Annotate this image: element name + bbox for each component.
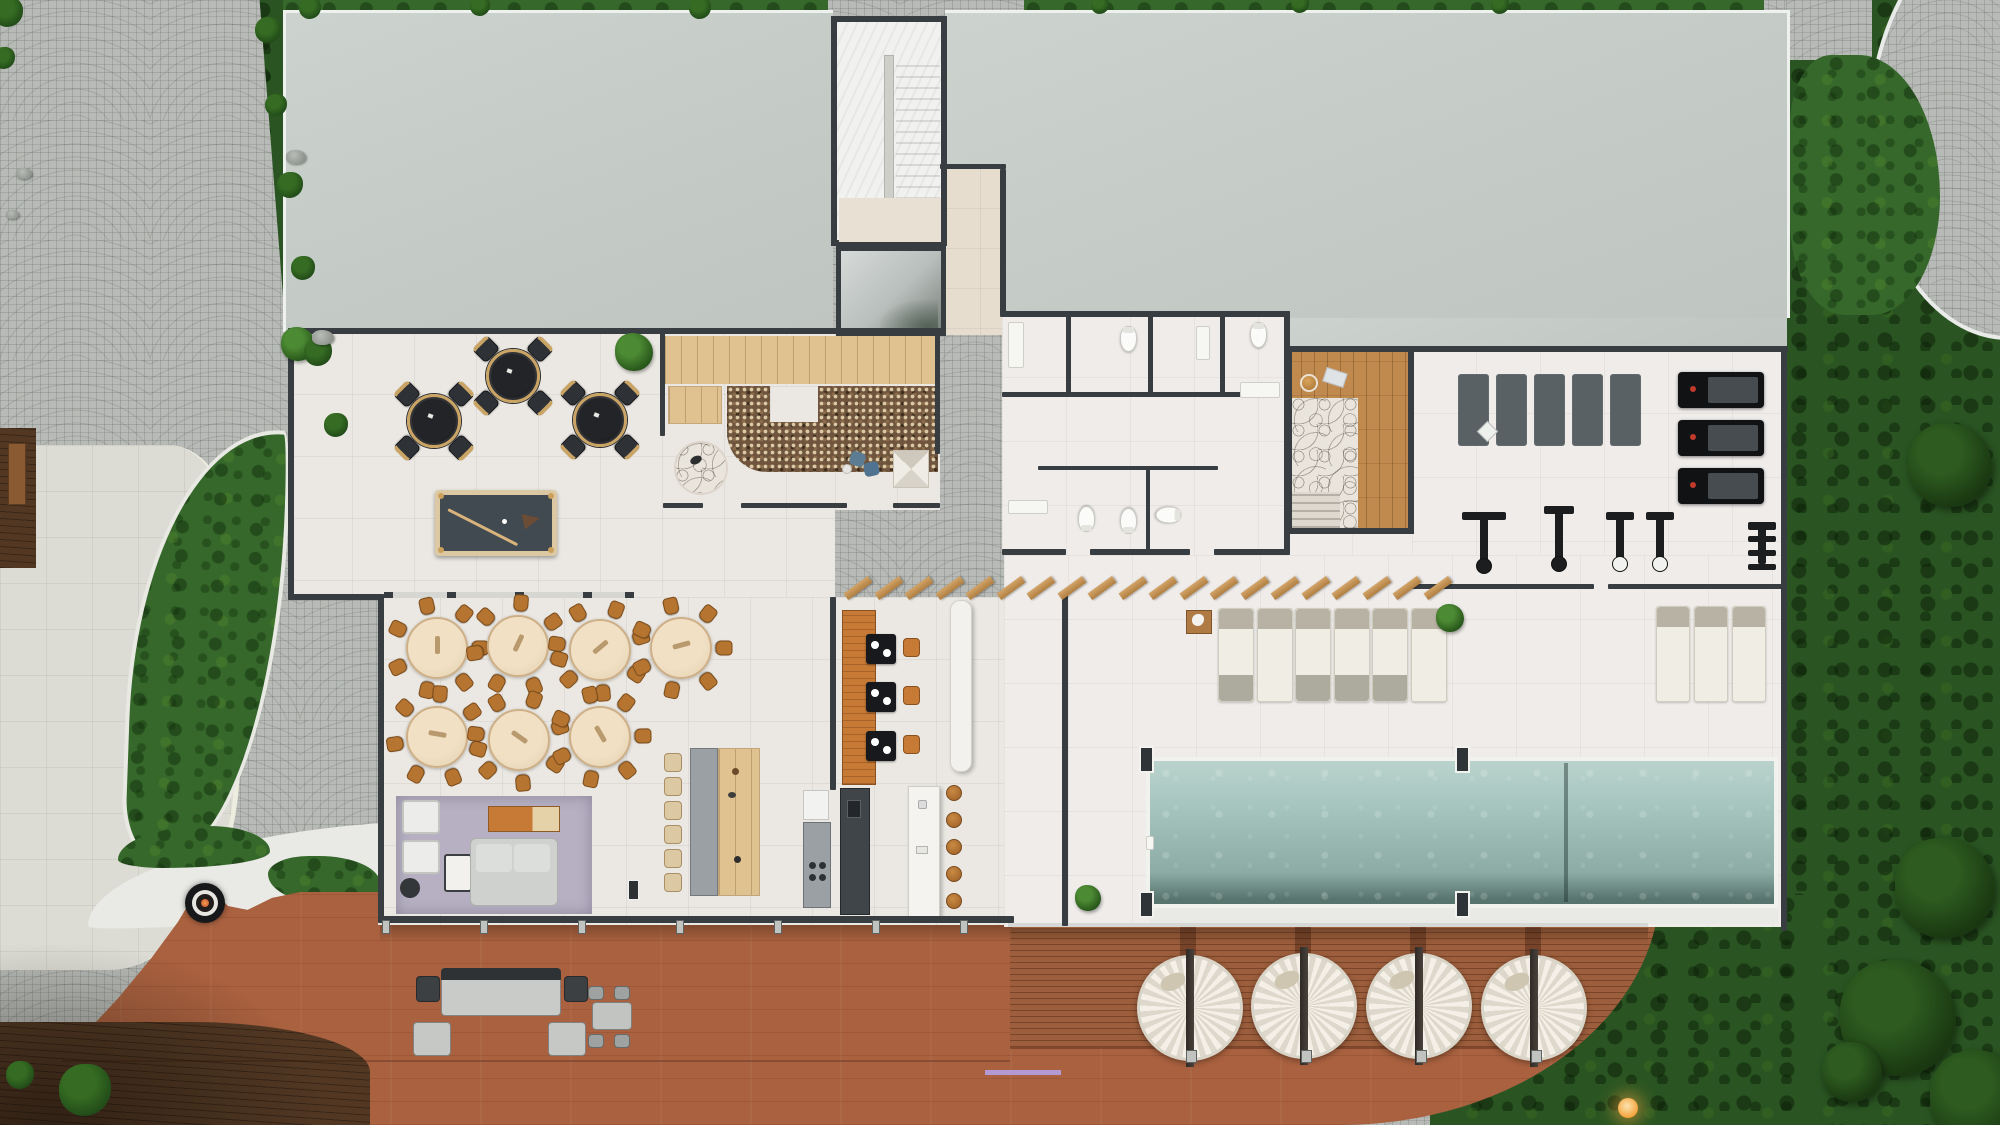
lounger-towel — [1219, 675, 1253, 701]
fixture — [1240, 382, 1280, 398]
island-item-1 — [918, 800, 927, 809]
gym-mat — [1496, 374, 1527, 446]
wall — [1002, 549, 1066, 555]
lounger-headrest — [1695, 607, 1727, 627]
deck-sofa-back — [441, 968, 561, 980]
lounger-headrest — [1657, 607, 1689, 627]
wall — [935, 332, 940, 454]
deck-dining-chair — [614, 986, 630, 1000]
toilet-tank — [1253, 323, 1264, 329]
deck-post — [480, 920, 488, 934]
bar-stool — [946, 893, 962, 909]
kitchen-sink — [847, 800, 861, 818]
communal-table-item-2 — [728, 792, 736, 798]
daybed-footing — [1531, 1050, 1542, 1063]
floor-speaker — [628, 880, 639, 900]
window-stub-2 — [447, 592, 456, 598]
dining-table — [650, 617, 712, 679]
building-shadow-on-deck-1 — [380, 922, 1012, 942]
wall — [1288, 346, 1788, 352]
pool-lane-divider — [1564, 763, 1568, 902]
pool-hall-south-edge — [1008, 923, 1648, 927]
island-item-2 — [916, 846, 928, 854]
fixture — [1008, 322, 1024, 368]
treadmill-display — [1690, 386, 1696, 392]
dining-table — [406, 706, 468, 768]
wall — [1608, 584, 1783, 589]
rock — [6, 210, 19, 219]
deck-armchair-1 — [413, 1022, 451, 1056]
lobby-bench — [668, 386, 722, 424]
indoor-pool — [1146, 757, 1778, 908]
gym-mat — [1534, 374, 1565, 446]
lounger-headrest — [1258, 609, 1292, 629]
plant — [615, 333, 653, 371]
deck-dining-chair — [588, 1034, 604, 1048]
wall — [1781, 346, 1787, 931]
daybed-footing — [1301, 1050, 1312, 1063]
communal-chair — [664, 849, 682, 868]
toilet-tank — [1123, 327, 1134, 333]
tree — [1895, 838, 1995, 938]
deck-side-table-2 — [564, 976, 588, 1002]
deck-post — [382, 920, 390, 934]
treadmill — [1678, 372, 1764, 408]
booth-plate — [871, 641, 879, 649]
booth-table — [866, 682, 896, 712]
wall — [288, 594, 384, 600]
communal-table-top — [718, 748, 760, 896]
bar-stool — [946, 839, 962, 855]
wall — [1000, 169, 1006, 317]
bar-stool — [946, 785, 962, 801]
treadmill-belt — [1708, 377, 1758, 403]
treadmill — [1678, 420, 1764, 456]
kitchen-range — [803, 790, 829, 820]
booth-plate — [871, 689, 879, 697]
toilet — [1156, 507, 1182, 524]
wall — [741, 503, 847, 508]
communal-chair — [664, 873, 682, 892]
communal-table-runner — [690, 748, 718, 896]
booth-table — [866, 634, 896, 664]
billiards-pocket-2 — [548, 493, 554, 499]
treadmill-display — [1690, 482, 1696, 488]
roof-west — [283, 10, 833, 332]
treadmill — [1678, 468, 1764, 504]
lounger-towel — [1373, 675, 1407, 701]
lounger-headrest — [1373, 609, 1407, 629]
dining-chair — [515, 774, 531, 792]
wall — [1002, 392, 1244, 397]
wall — [378, 916, 1014, 923]
gym-machine-stem — [1758, 528, 1766, 564]
wall — [1148, 311, 1153, 396]
booth-table — [866, 731, 896, 761]
billiards-pocket-4 — [548, 547, 554, 553]
deck-side-table-1 — [416, 976, 440, 1002]
sun-lounger — [1372, 608, 1408, 702]
side-table-round — [400, 878, 420, 898]
wall — [1062, 592, 1068, 926]
booth-chair — [903, 638, 920, 657]
toilet-tank — [1123, 527, 1134, 533]
lounger-headrest — [1219, 609, 1253, 629]
daybed-footing — [1186, 1050, 1197, 1063]
dining-chair — [432, 685, 448, 703]
roof-east — [945, 10, 1790, 318]
window-stub-5 — [625, 592, 634, 598]
communal-chair — [664, 777, 682, 796]
burner-3 — [809, 874, 816, 881]
dining-window-band — [384, 592, 634, 598]
wall — [1038, 466, 1218, 470]
daybed-footing — [1416, 1050, 1427, 1063]
building-shadow-on-deck-2 — [1012, 928, 1648, 944]
toilet — [1250, 322, 1267, 348]
coffee-table — [444, 854, 472, 892]
wall — [1066, 311, 1071, 396]
wall — [660, 332, 665, 436]
dining-chair — [715, 640, 732, 655]
sun-lounger — [1295, 608, 1331, 702]
communal-chair — [664, 801, 682, 820]
window-stub-4 — [583, 592, 592, 598]
lobby-round-rug — [674, 441, 728, 495]
floor-plan-render — [0, 0, 2000, 1125]
deck-post — [774, 920, 782, 934]
toilet-tank — [1081, 525, 1092, 531]
sun-lounger — [1656, 606, 1690, 702]
pool-pillar — [1139, 891, 1154, 918]
bistro-table — [573, 393, 627, 447]
cobble-strip-northeast — [1786, 0, 1872, 60]
wall — [1214, 549, 1290, 555]
lobby-side-table — [842, 464, 852, 474]
stair-steps — [896, 58, 940, 210]
sofa-cushion-1 — [476, 844, 512, 872]
dining-chair — [634, 729, 651, 744]
sauna-wall — [1286, 346, 1414, 534]
booth-plate — [883, 697, 891, 705]
gym-machine-seat — [1652, 556, 1668, 572]
lounger-headrest — [1296, 609, 1330, 629]
bar-counter — [950, 600, 972, 772]
communal-table-item-1 — [732, 768, 739, 775]
wall — [1146, 466, 1150, 553]
gym-mat — [1572, 374, 1603, 446]
toilet — [1078, 506, 1095, 532]
stair-rail — [884, 55, 894, 213]
plant — [1075, 885, 1101, 911]
fixture — [1146, 836, 1154, 850]
booth-plate — [883, 649, 891, 657]
communal-table-item-3 — [734, 856, 741, 863]
rack-rung — [1748, 550, 1776, 556]
wall — [893, 503, 940, 508]
deck-dining-table — [592, 1002, 632, 1030]
wall — [663, 503, 703, 508]
daybed-post — [1415, 947, 1423, 1065]
treadmill-belt — [1708, 425, 1758, 451]
gym-machine-seat — [1476, 558, 1492, 574]
lobby-wood-strip — [665, 336, 937, 384]
wall — [288, 328, 942, 334]
lounger-towel — [1335, 675, 1369, 701]
sun-lounger — [1218, 608, 1254, 702]
deck-post — [872, 920, 880, 934]
deck-dining-chair — [614, 1034, 630, 1048]
wall — [830, 597, 836, 790]
wall — [1090, 549, 1190, 555]
media-console — [488, 806, 560, 832]
burner-1 — [809, 862, 816, 869]
plant — [1436, 604, 1464, 632]
lobby-pebble-notch — [770, 386, 818, 422]
dining-table-napkin — [435, 636, 440, 654]
billiards-pocket-1 — [438, 493, 444, 499]
booth-chair — [903, 735, 920, 754]
deck-armchair-2 — [548, 1022, 586, 1056]
gym-machine-stem — [1616, 518, 1624, 560]
deck-corner-shadow — [0, 940, 330, 1125]
bistro-table — [407, 394, 461, 448]
vestibule-shadow — [880, 300, 938, 330]
gym-machine-seat — [1551, 556, 1567, 572]
garden-structure-bench — [8, 443, 26, 505]
sun-lounger — [1694, 606, 1728, 702]
bar-stool — [946, 812, 962, 828]
treadmill-display — [1690, 434, 1696, 440]
deck-dining-chair — [588, 986, 604, 1000]
deck-post — [676, 920, 684, 934]
booth-chair — [903, 686, 920, 705]
booth-plate — [883, 746, 891, 754]
toilet — [1120, 508, 1137, 534]
rack-rung — [1748, 536, 1776, 542]
tree — [1908, 423, 1992, 507]
pool-pillar — [1455, 891, 1470, 918]
wall — [288, 328, 294, 600]
rock — [286, 150, 306, 164]
sun-lounger — [1257, 608, 1293, 702]
burner-4 — [819, 874, 826, 881]
kitchen-appliance — [803, 822, 831, 908]
deck-post — [578, 920, 586, 934]
lounger-towel — [1296, 675, 1330, 701]
stair-landing — [839, 198, 941, 242]
toilet-tank — [1175, 510, 1181, 521]
lounge-armchair-2 — [402, 840, 440, 874]
rack-rung — [1748, 564, 1776, 570]
gym-machine-stem — [1656, 518, 1664, 560]
tree — [1822, 1042, 1882, 1102]
glass-door-accent-2 — [985, 1070, 1061, 1075]
billiards-table — [435, 490, 557, 556]
bar-stool — [946, 866, 962, 882]
floor-corridor — [940, 168, 1004, 335]
toilet — [1120, 326, 1137, 352]
wall — [940, 164, 1006, 169]
fire-pit-ember — [201, 899, 209, 907]
wall — [1220, 311, 1225, 396]
deck-lamp — [1618, 1098, 1638, 1118]
lounger-headrest — [1335, 609, 1369, 629]
pool-pillar — [1455, 746, 1470, 773]
fixture — [1196, 326, 1210, 360]
floor-restrooms — [1002, 313, 1288, 555]
communal-chair — [664, 753, 682, 772]
daybed-post — [1300, 947, 1308, 1065]
lounge-armchair-1 — [402, 800, 440, 834]
sun-lounger — [1334, 608, 1370, 702]
window-stub-1 — [384, 592, 393, 598]
bistro-table — [486, 349, 540, 403]
deck-groove-west — [62, 1060, 1010, 1062]
sun-lounger — [1732, 606, 1766, 702]
booth-plate — [871, 738, 879, 746]
rock — [312, 330, 334, 345]
wall — [378, 594, 384, 922]
gym-mat — [1610, 374, 1641, 446]
billiards-pocket-3 — [438, 547, 444, 553]
dining-chair — [385, 735, 404, 753]
communal-chair — [664, 825, 682, 844]
lobby-tent — [893, 450, 929, 488]
dining-chair — [513, 594, 529, 612]
billiards-cue-ball — [502, 519, 507, 524]
burner-2 — [819, 862, 826, 869]
rock — [16, 168, 32, 179]
wall — [1002, 311, 1290, 317]
gym-machine-stem — [1555, 512, 1563, 560]
sofa-cushion-2 — [514, 844, 550, 872]
deck-post — [960, 920, 968, 934]
treadmill-belt — [1708, 473, 1758, 499]
pool-pillar — [1139, 746, 1154, 773]
gym-machine-seat — [1612, 556, 1628, 572]
fixture — [1008, 500, 1048, 514]
lounger-headrest — [1733, 607, 1765, 627]
gym-machine-stem — [1480, 518, 1488, 562]
